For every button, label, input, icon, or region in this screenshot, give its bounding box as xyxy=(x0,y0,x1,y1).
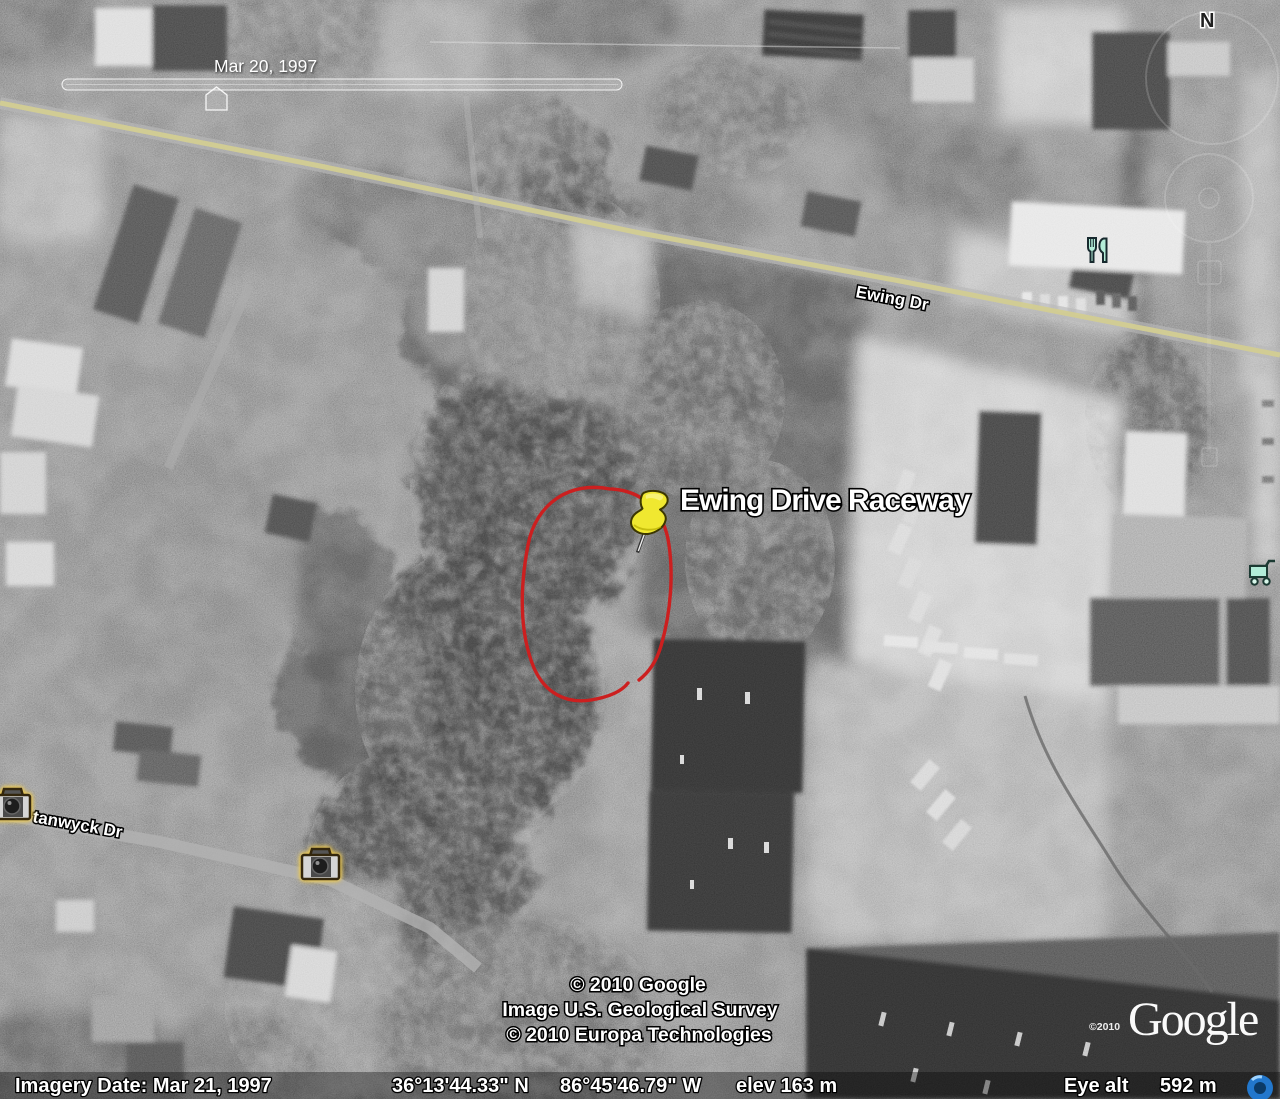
svg-text:Image U.S. Geological Survey: Image U.S. Geological Survey xyxy=(502,999,777,1021)
svg-text:© 2010 Google: © 2010 Google xyxy=(570,974,706,996)
svg-text:elev 163 m: elev 163 m xyxy=(736,1075,837,1097)
svg-text:86°45'46.79" W: 86°45'46.79" W xyxy=(560,1075,701,1097)
svg-text:©2010: ©2010 xyxy=(1089,1021,1120,1033)
svg-text:Imagery Date: Mar 21, 1997: Imagery Date: Mar 21, 1997 xyxy=(15,1075,272,1097)
svg-text:36°13'44.33" N: 36°13'44.33" N xyxy=(392,1075,529,1097)
svg-text:Ewing Drive Raceway: Ewing Drive Raceway xyxy=(680,484,971,517)
svg-text:592 m: 592 m xyxy=(1160,1075,1217,1097)
svg-text:N: N xyxy=(1200,10,1214,32)
svg-text:Google: Google xyxy=(1128,993,1258,1046)
svg-text:Eye alt: Eye alt xyxy=(1064,1075,1129,1097)
svg-text:Mar 20, 1997: Mar 20, 1997 xyxy=(214,56,317,76)
svg-text:© 2010 Europa Technologies: © 2010 Europa Technologies xyxy=(506,1024,772,1046)
